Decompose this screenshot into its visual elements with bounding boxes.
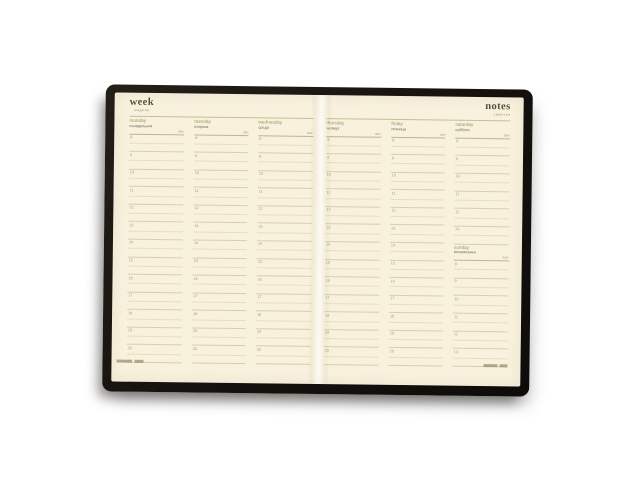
- ruled-line: [127, 301, 182, 303]
- hour-slot-monday-9: 9: [129, 152, 184, 170]
- hour-number: 10: [455, 297, 459, 302]
- hour-number: 18: [390, 314, 394, 319]
- hour-number: 17: [258, 294, 262, 299]
- hour-number: 13: [455, 227, 459, 232]
- ruled-line: [455, 182, 510, 184]
- open-page-spread: week неделя mondayпонедельникdate8910111…: [111, 93, 524, 387]
- day-header-saturday: saturdayсубботаdate: [456, 123, 511, 139]
- hour-number: 8: [260, 136, 262, 141]
- hour-slot-wednesday-19: 19: [256, 329, 311, 347]
- hour-slot-thursday-8: 8: [326, 137, 381, 155]
- hour-slot-thursday-11: 11: [325, 189, 380, 207]
- hour-number: 16: [258, 277, 262, 282]
- ruled-line: [326, 162, 381, 164]
- ruled-line: [390, 216, 445, 218]
- day-name-ru: четверг: [326, 126, 339, 130]
- right-page-columns: thursdayчетвергdate891011121314151617181…: [323, 121, 510, 367]
- hour-number: 8: [195, 135, 197, 140]
- hour-number: 16: [129, 275, 133, 280]
- hour-number: 12: [391, 208, 395, 213]
- hour-number: 18: [257, 312, 261, 317]
- hour-slot-friday-13: 13: [390, 225, 445, 243]
- date-label: date: [178, 130, 184, 133]
- hour-number: 20: [128, 346, 132, 351]
- hour-number: 17: [128, 293, 132, 298]
- hour-number: 13: [258, 224, 262, 229]
- ruled-line: [453, 357, 508, 359]
- ruled-line: [455, 200, 510, 202]
- ruled-line: [326, 198, 381, 200]
- hour-slot-wednesday-8: 8: [258, 136, 313, 154]
- hour-slot-saturday-13: 13: [454, 227, 509, 245]
- hour-slot-friday-12: 12: [390, 208, 445, 226]
- hour-number: 8: [130, 135, 132, 140]
- hour-slot-monday-19: 19: [127, 328, 182, 346]
- hour-slot-friday-11: 11: [390, 190, 445, 208]
- ruled-line: [258, 197, 313, 199]
- day-name-ru: воскресенье: [454, 250, 476, 255]
- hour-number: 12: [326, 207, 330, 212]
- page-title-notes: notes: [485, 102, 510, 112]
- page-title-week: week: [130, 98, 154, 108]
- ruled-line: [389, 286, 444, 288]
- ruled-line: [455, 164, 510, 166]
- hour-slot-thursday-20: 20: [323, 348, 378, 366]
- hour-number: 19: [325, 330, 329, 335]
- ruled-line: [257, 267, 312, 269]
- ruled-line: [326, 180, 381, 182]
- hour-slot-friday-18: 18: [389, 313, 444, 331]
- hour-slot-friday-20: 20: [388, 348, 443, 366]
- page-subtitle-notes: заметки: [494, 113, 511, 116]
- ruled-line: [128, 213, 183, 215]
- ruled-line: [128, 248, 183, 250]
- ruled-line: [192, 301, 247, 303]
- hour-number: 16: [325, 278, 329, 283]
- ruled-line: [454, 269, 509, 271]
- day-name-en: saturday: [456, 122, 474, 127]
- right-page: notes заметки thursdayчетвергdate8910111…: [323, 95, 511, 386]
- ruled-line: [454, 287, 509, 289]
- hour-slot-thursday-18: 18: [324, 312, 379, 330]
- hour-number: 12: [194, 206, 198, 211]
- hour-number: 14: [129, 240, 133, 245]
- date-label: date: [504, 134, 510, 137]
- hour-slot-friday-10: 10: [390, 173, 445, 191]
- ruled-line: [258, 214, 313, 216]
- ruled-line: [454, 235, 509, 237]
- hour-slot-monday-10: 10: [129, 169, 184, 187]
- hour-slot-thursday-15: 15: [325, 260, 380, 278]
- ruled-line: [325, 215, 380, 217]
- hour-slot-tuesday-13: 13: [193, 223, 248, 241]
- ruled-line: [128, 230, 183, 232]
- hour-slot-monday-11: 11: [128, 187, 183, 205]
- hour-number: 10: [130, 170, 134, 175]
- hour-number: 10: [194, 171, 198, 176]
- hour-number: 20: [389, 349, 393, 354]
- hour-number: 9: [392, 155, 394, 160]
- ruled-line: [325, 233, 380, 235]
- hour-slot-saturday-8: 8: [455, 138, 510, 156]
- ruled-line: [324, 285, 379, 287]
- day-name-en: thursday: [326, 120, 344, 125]
- hour-number: 13: [194, 223, 198, 228]
- footer-text-left: [116, 360, 143, 363]
- hour-number: 11: [194, 188, 198, 193]
- footer-text-right: [483, 364, 507, 367]
- hour-slot-saturday-11: 11: [455, 191, 510, 209]
- day-header-tuesday: tuesdayвторникdate: [194, 119, 249, 135]
- left-page-columns: mondayпонедельникdate8910111213141516171…: [126, 119, 313, 365]
- hour-slot-monday-18: 18: [127, 310, 182, 328]
- hour-slot-tuesday-16: 16: [192, 276, 247, 294]
- ruled-line: [192, 319, 247, 321]
- hour-slot-monday-16: 16: [127, 275, 182, 293]
- ruled-line: [128, 266, 183, 268]
- hour-number: 9: [259, 154, 261, 159]
- hour-slot-thursday-10: 10: [326, 172, 381, 190]
- day-name-ru: суббота: [456, 127, 470, 131]
- hour-slot-thursday-17: 17: [324, 295, 379, 313]
- ruled-line: [193, 214, 248, 216]
- hour-slot-saturday-12: 12: [455, 209, 510, 227]
- date-label: date: [243, 130, 249, 133]
- ruled-line: [258, 162, 313, 164]
- hour-slot-monday-12: 12: [128, 204, 183, 222]
- day-column-monday: mondayпонедельникdate8910111213141516171…: [126, 119, 184, 364]
- hour-number: 20: [257, 347, 261, 352]
- day-column-thursday: thursdayчетвергdate891011121314151617181…: [323, 121, 381, 366]
- hour-slot-monday-14: 14: [128, 240, 183, 258]
- day-header-friday: fridayпятницаdate: [391, 122, 446, 138]
- hour-slot-tuesday-14: 14: [192, 240, 247, 258]
- hour-slot-wednesday-13: 13: [257, 224, 312, 242]
- ruled-line: [129, 160, 184, 162]
- hour-slot-wednesday-18: 18: [256, 312, 311, 330]
- hour-slot-friday-14: 14: [389, 243, 444, 261]
- hour-slot-thursday-19: 19: [324, 330, 379, 348]
- hour-number: 13: [454, 350, 458, 355]
- hour-number: 16: [390, 279, 394, 284]
- hour-slot-wednesday-17: 17: [256, 294, 311, 312]
- hour-number: 16: [193, 276, 197, 281]
- hour-number: 12: [129, 205, 133, 210]
- hour-number: 20: [325, 348, 329, 353]
- hour-number: 12: [454, 332, 458, 337]
- ruled-line: [390, 181, 445, 183]
- hour-number: 8: [327, 137, 329, 142]
- hour-number: 14: [391, 243, 395, 248]
- hour-number: 18: [128, 310, 132, 315]
- ruled-line: [193, 231, 248, 233]
- ruled-line: [389, 269, 444, 271]
- hour-slot-tuesday-12: 12: [193, 205, 248, 223]
- hour-number: 11: [130, 187, 134, 192]
- ruled-line: [389, 321, 444, 323]
- ruled-line: [455, 147, 510, 149]
- hour-number: 19: [193, 329, 197, 334]
- hour-number: 15: [390, 261, 394, 266]
- ruled-line: [324, 356, 379, 358]
- date-label: date: [503, 256, 509, 259]
- hour-slot-friday-16: 16: [389, 278, 444, 296]
- date-label: date: [375, 132, 381, 135]
- hour-slot-tuesday-9: 9: [194, 153, 249, 171]
- day-header-thursday: thursdayчетвергdate: [326, 121, 381, 137]
- ruled-line: [127, 353, 182, 355]
- ruled-line: [257, 285, 312, 287]
- ruled-line: [194, 161, 249, 163]
- hour-number: 8: [457, 139, 459, 144]
- hour-number: 8: [455, 261, 457, 266]
- photo-background: week неделя mondayпонедельникdate8910111…: [0, 0, 640, 480]
- ruled-line: [191, 354, 246, 356]
- hour-number: 14: [326, 243, 330, 248]
- day-header-monday: mondayпонедельникdate: [129, 119, 184, 135]
- ruled-line: [324, 321, 379, 323]
- hour-number: 15: [258, 259, 262, 264]
- hour-number: 9: [456, 156, 458, 161]
- hour-slot-tuesday-19: 19: [191, 328, 246, 346]
- hour-number: 12: [456, 209, 460, 214]
- hour-slot-friday-8: 8: [391, 137, 446, 155]
- ruled-line: [129, 178, 184, 180]
- ruled-line: [257, 302, 312, 304]
- ruled-line: [454, 304, 509, 306]
- hour-number: 13: [129, 223, 133, 228]
- ruled-line: [193, 178, 248, 180]
- ruled-line: [325, 268, 380, 270]
- hour-number: 15: [193, 259, 197, 264]
- hour-slot-tuesday-15: 15: [192, 258, 247, 276]
- ruled-line: [192, 266, 247, 268]
- hour-slot-thursday-12: 12: [325, 207, 380, 225]
- hour-slot-tuesday-8: 8: [194, 135, 249, 153]
- hour-slot-friday-9: 9: [391, 155, 446, 173]
- ruled-line: [258, 179, 313, 181]
- day-column-wednesday: wednesdayсредаdate8910111213141516171819…: [256, 120, 314, 365]
- hour-number: 17: [390, 296, 394, 301]
- hour-number: 13: [391, 226, 395, 231]
- ruled-line: [257, 250, 312, 252]
- hour-slot-friday-17: 17: [389, 296, 444, 314]
- hour-number: 18: [325, 313, 329, 318]
- hour-number: 14: [258, 242, 262, 247]
- date-label: date: [307, 131, 313, 134]
- hour-slot-saturday-9: 9: [455, 156, 510, 174]
- hour-slot-thursday-9: 9: [326, 154, 381, 172]
- ruled-line: [388, 339, 443, 341]
- hour-number: 19: [257, 330, 261, 335]
- ruled-line: [259, 144, 314, 146]
- day-name-ru: пятница: [391, 126, 406, 130]
- hour-number: 11: [327, 190, 331, 195]
- hour-slot-sunday-9: 9: [454, 278, 509, 296]
- ruled-line: [324, 338, 379, 340]
- ruled-line: [325, 250, 380, 252]
- hour-slot-wednesday-11: 11: [258, 189, 313, 207]
- hour-slot-tuesday-11: 11: [193, 188, 248, 206]
- page-subtitle-week: неделя: [135, 109, 150, 112]
- hour-number: 9: [455, 279, 457, 284]
- hour-slot-wednesday-14: 14: [257, 241, 312, 259]
- hour-number: 9: [195, 153, 197, 158]
- hour-number: 17: [325, 295, 329, 300]
- ruled-line: [389, 304, 444, 306]
- hour-slot-friday-15: 15: [389, 260, 444, 278]
- hour-slot-sunday-10: 10: [453, 296, 508, 314]
- hour-number: 17: [193, 294, 197, 299]
- ruled-line: [390, 251, 445, 253]
- hour-slot-tuesday-17: 17: [192, 293, 247, 311]
- hour-slot-tuesday-18: 18: [192, 311, 247, 329]
- ruled-line: [193, 196, 248, 198]
- ruled-line: [388, 357, 443, 359]
- ruled-line: [453, 322, 508, 324]
- hour-number: 11: [454, 314, 458, 319]
- day-header-wednesday: wednesdayсредаdate: [259, 120, 314, 136]
- day-name-en: friday: [391, 121, 403, 126]
- ruled-line: [129, 142, 184, 144]
- day-column-tuesday: tuesdayвторникdate8910111213141516171819…: [191, 119, 249, 364]
- ruled-line: [193, 249, 248, 251]
- hour-slot-wednesday-16: 16: [257, 276, 312, 294]
- ruled-line: [191, 337, 246, 339]
- hour-slot-monday-8: 8: [129, 134, 184, 152]
- ruled-line: [390, 198, 445, 200]
- hour-number: 14: [194, 241, 198, 246]
- hour-number: 20: [192, 346, 196, 351]
- hour-number: 10: [259, 171, 263, 176]
- day-name-en: wednesday: [259, 119, 283, 124]
- hour-number: 12: [259, 207, 263, 212]
- ruled-line: [256, 320, 311, 322]
- day-name-ru: понедельник: [129, 123, 152, 128]
- ruled-line: [326, 145, 381, 147]
- hour-slot-tuesday-10: 10: [193, 170, 248, 188]
- ruled-line: [324, 303, 379, 305]
- left-page: week неделя mondayпонедельникdate8910111…: [126, 93, 314, 384]
- hour-slot-friday-19: 19: [388, 331, 443, 349]
- hour-number: 9: [130, 152, 132, 157]
- hour-slot-thursday-16: 16: [324, 277, 379, 295]
- hour-number: 10: [391, 173, 395, 178]
- day-column-saturday-sunday: saturdayсубботаdate8910111213sundayвоскр…: [453, 123, 511, 368]
- ruled-line: [391, 163, 446, 165]
- ruled-line: [455, 217, 510, 219]
- hour-slot-tuesday-20: 20: [191, 346, 246, 364]
- hour-slot-wednesday-10: 10: [258, 171, 313, 189]
- hour-number: 15: [326, 260, 330, 265]
- ruled-line: [194, 143, 249, 145]
- hour-slot-wednesday-20: 20: [256, 347, 311, 365]
- hour-slot-wednesday-9: 9: [258, 153, 313, 171]
- planner-notebook: week неделя mondayпонедельникdate8910111…: [102, 84, 533, 396]
- day-header-sunday: sundayвоскресеньеdate: [454, 244, 509, 261]
- ruled-line: [127, 336, 182, 338]
- hour-slot-sunday-8: 8: [454, 261, 509, 279]
- hour-number: 19: [128, 328, 132, 333]
- hour-slot-thursday-13: 13: [325, 224, 380, 242]
- ruled-line: [391, 146, 446, 148]
- hour-number: 10: [327, 172, 331, 177]
- day-name-ru: среда: [259, 125, 270, 129]
- date-label: date: [439, 133, 445, 136]
- day-column-friday: fridayпятницаdate89101112131415161718192…: [388, 122, 446, 367]
- ruled-line: [453, 340, 508, 342]
- hour-slot-monday-13: 13: [128, 222, 183, 240]
- hour-slot-thursday-14: 14: [325, 242, 380, 260]
- day-name-ru: вторник: [194, 124, 208, 128]
- hour-number: 11: [259, 189, 263, 194]
- hour-slot-monday-15: 15: [128, 257, 183, 275]
- hour-number: 9: [327, 155, 329, 160]
- hour-slot-sunday-11: 11: [453, 314, 508, 332]
- day-name-en: tuesday: [194, 118, 210, 123]
- day-name-en: monday: [129, 118, 146, 123]
- ruled-line: [127, 318, 182, 320]
- hour-number: 18: [193, 311, 197, 316]
- hour-number: 13: [326, 225, 330, 230]
- hour-number: 10: [456, 174, 460, 179]
- ruled-line: [127, 283, 182, 285]
- hour-slot-sunday-12: 12: [453, 331, 508, 349]
- hour-slot-saturday-10: 10: [455, 174, 510, 192]
- hour-number: 11: [391, 191, 395, 196]
- hour-number: 19: [390, 331, 394, 336]
- ruled-line: [390, 234, 445, 236]
- ruled-line: [256, 337, 311, 339]
- ruled-line: [256, 355, 311, 357]
- hour-slot-wednesday-15: 15: [257, 259, 312, 277]
- hour-slot-monday-17: 17: [127, 292, 182, 310]
- hour-number: 11: [456, 192, 460, 197]
- ruled-line: [129, 195, 184, 197]
- hour-number: 8: [392, 138, 394, 143]
- ruled-line: [257, 232, 312, 234]
- ruled-line: [192, 284, 247, 286]
- hour-number: 15: [129, 258, 133, 263]
- hour-slot-wednesday-12: 12: [258, 206, 313, 224]
